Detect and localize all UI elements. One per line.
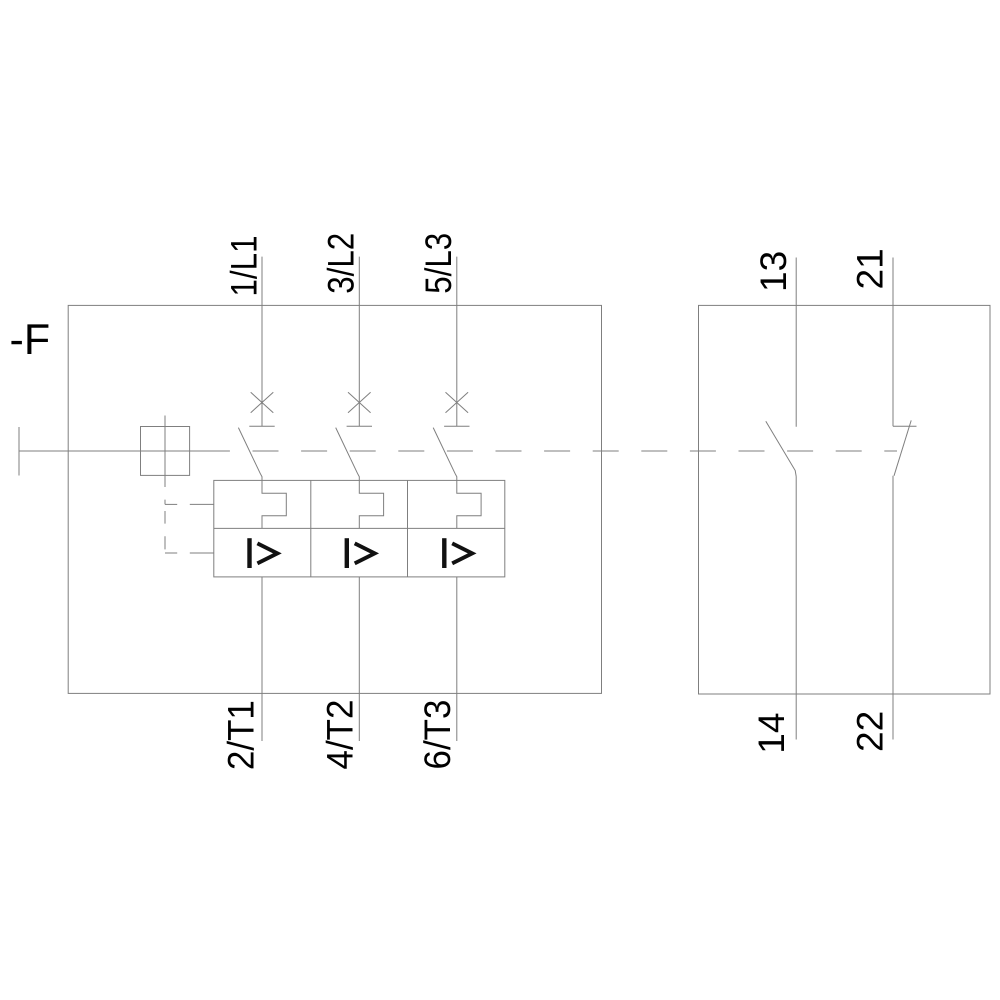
svg-text:2/T1: 2/T1 (221, 700, 262, 770)
svg-text:14: 14 (751, 713, 792, 754)
svg-text:4/T2: 4/T2 (319, 700, 360, 770)
svg-text:3/L2: 3/L2 (320, 233, 361, 294)
svg-text:-F: -F (10, 316, 51, 364)
svg-text:6/T3: 6/T3 (417, 700, 458, 770)
svg-text:1/L1: 1/L1 (224, 236, 265, 297)
svg-text:21: 21 (850, 248, 891, 289)
svg-text:5/L3: 5/L3 (418, 233, 459, 294)
svg-text:22: 22 (850, 711, 891, 752)
svg-text:13: 13 (753, 251, 794, 292)
